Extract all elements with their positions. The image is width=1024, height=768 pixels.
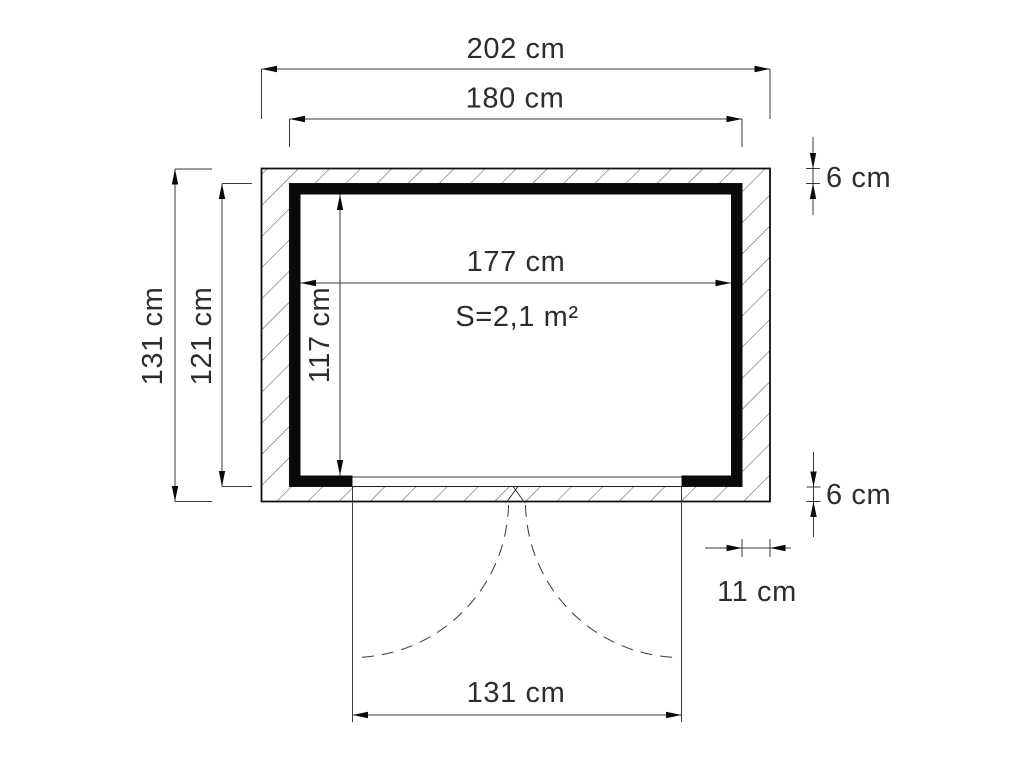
dimension-label-side-wall-thickness: 11 cm — [717, 576, 797, 608]
wall-inner-liner — [290, 184, 743, 487]
liner-top — [290, 184, 743, 195]
dimension-wall-thickness-top: 6 cm — [806, 137, 891, 215]
arrowhead-down — [810, 153, 816, 169]
area-label: S=2,1 m² — [455, 301, 578, 333]
arrowhead-bottom — [219, 471, 225, 487]
liner-left — [290, 184, 301, 487]
outer-wall-outline — [262, 169, 771, 502]
wall-hatched-band — [262, 169, 771, 502]
arrowhead-right — [727, 116, 743, 122]
dimension-label-wall-thickness-bottom: 6 cm — [826, 479, 891, 511]
arrowhead-top — [172, 169, 178, 185]
arrowhead-left — [301, 280, 317, 286]
dimension-frame-width: 180 cm — [290, 83, 743, 148]
floor-plan-drawing: 202 cm 180 cm 131 cm 121 cm 177 cm 117 c… — [0, 0, 1024, 768]
liner-right — [731, 184, 742, 487]
arrowhead-down — [810, 472, 816, 488]
dimension-label-interior-width: 177 cm — [467, 246, 566, 278]
arrowhead-bottom — [172, 486, 178, 502]
dimension-label-frame-width: 180 cm — [466, 83, 565, 115]
door-swing-arc-left — [358, 505, 509, 657]
arrowhead-top — [219, 184, 225, 200]
arrowhead-right — [755, 66, 771, 72]
dimension-label-outer-width: 202 cm — [467, 33, 566, 65]
arrowhead-right — [666, 712, 682, 718]
arrowhead-left — [353, 712, 369, 718]
dimension-label-outer-height: 131 cm — [137, 287, 169, 386]
liner-bottom-right — [682, 476, 743, 487]
dimension-interior-height: 117 cm — [304, 195, 343, 476]
arrowhead-up — [810, 502, 816, 518]
dimension-frame-height: 121 cm — [186, 184, 252, 487]
arrowhead-right — [727, 545, 743, 551]
dimension-interior-width: 177 cm — [301, 246, 732, 286]
dimension-wall-thickness-bottom: 6 cm — [807, 452, 892, 537]
arrowhead-bottom — [337, 460, 343, 476]
arrowhead-top — [337, 195, 343, 211]
dimension-label-interior-height: 117 cm — [304, 287, 336, 384]
floor-plan-page: 202 cm 180 cm 131 cm 121 cm 177 cm 117 c… — [0, 0, 1024, 768]
arrowhead-up — [810, 184, 816, 200]
arrowhead-left — [770, 545, 786, 551]
dimension-side-wall-thickness: 11 cm — [705, 539, 797, 608]
liner-bottom-left — [290, 476, 353, 487]
dimension-label-frame-height: 121 cm — [186, 287, 218, 386]
dimension-door-width: 131 cm — [353, 677, 682, 718]
arrowhead-left — [290, 116, 306, 122]
arrowhead-right — [716, 280, 732, 286]
door-swing-arc-right — [526, 505, 677, 657]
dimension-label-door-width: 131 cm — [467, 677, 566, 709]
arrowhead-left — [262, 66, 278, 72]
dimension-label-wall-thickness-top: 6 cm — [826, 162, 891, 194]
